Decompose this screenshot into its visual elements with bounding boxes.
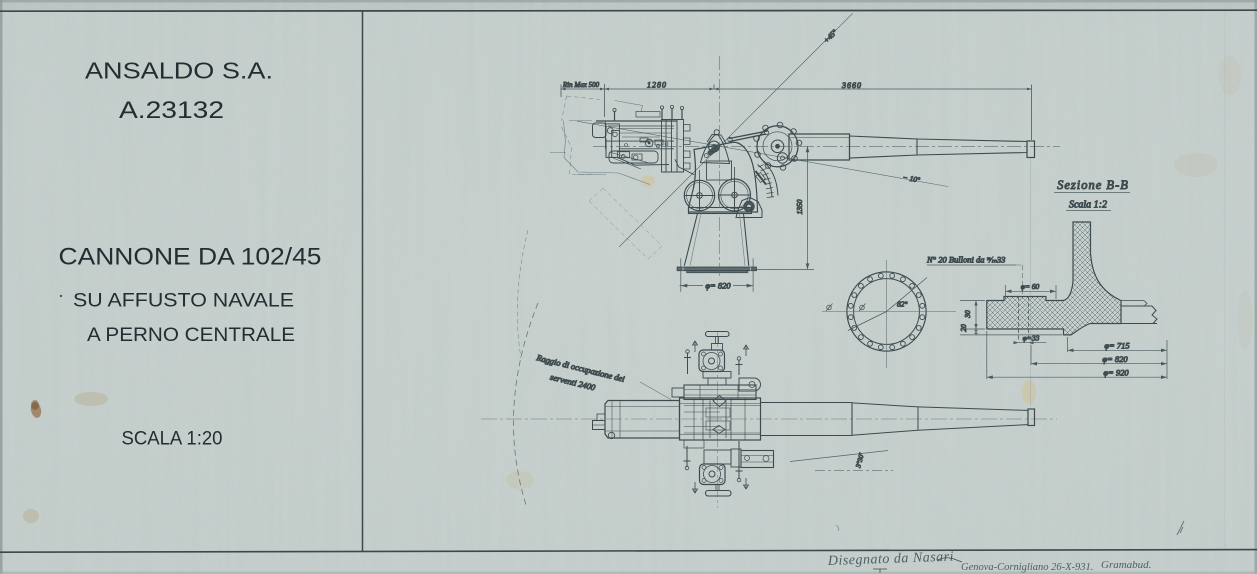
svg-text:A.23132: A.23132: [119, 97, 224, 124]
svg-text:N° 20 Bulloni da ᵐ∕ₘ33: N° 20 Bulloni da ᵐ∕ₘ33: [926, 255, 1005, 265]
svg-text:3660: 3660: [841, 81, 862, 90]
svg-text:SU AFFUSTO NAVALE: SU AFFUSTO NAVALE: [73, 291, 294, 312]
svg-text:φ= 820: φ= 820: [1102, 354, 1128, 364]
svg-text:φ= 920: φ= 920: [1103, 368, 1129, 378]
svg-text:Genova-Cornigliano 26-X-931.: Genova-Cornigliano 26-X-931.: [961, 562, 1093, 573]
svg-text:30: 30: [963, 310, 972, 319]
svg-text:Sezione B-B: Sezione B-B: [1057, 178, 1129, 192]
svg-text:1280: 1280: [647, 81, 667, 90]
svg-text:ANSALDO S.A.: ANSALDO S.A.: [85, 58, 273, 84]
svg-text:φ= 820: φ= 820: [705, 281, 731, 291]
svg-text:Scala 1:2: Scala 1:2: [1069, 200, 1107, 211]
svg-text:20: 20: [959, 324, 968, 332]
svg-text:82°: 82°: [897, 300, 908, 309]
svg-text:CANNONE DA 102/45: CANNONE DA 102/45: [59, 244, 322, 271]
svg-text:φ= 60: φ= 60: [1021, 282, 1040, 291]
svg-text:φ= 715: φ= 715: [1104, 341, 1129, 351]
svg-text:1350: 1350: [795, 199, 804, 214]
svg-text:Gramabud.: Gramabud.: [1101, 559, 1151, 571]
svg-text:Rin Max 500: Rin Max 500: [562, 81, 600, 89]
svg-text:A PERNO CENTRALE: A PERNO CENTRALE: [87, 325, 295, 346]
svg-text:SCALA 1:20: SCALA 1:20: [122, 428, 223, 450]
